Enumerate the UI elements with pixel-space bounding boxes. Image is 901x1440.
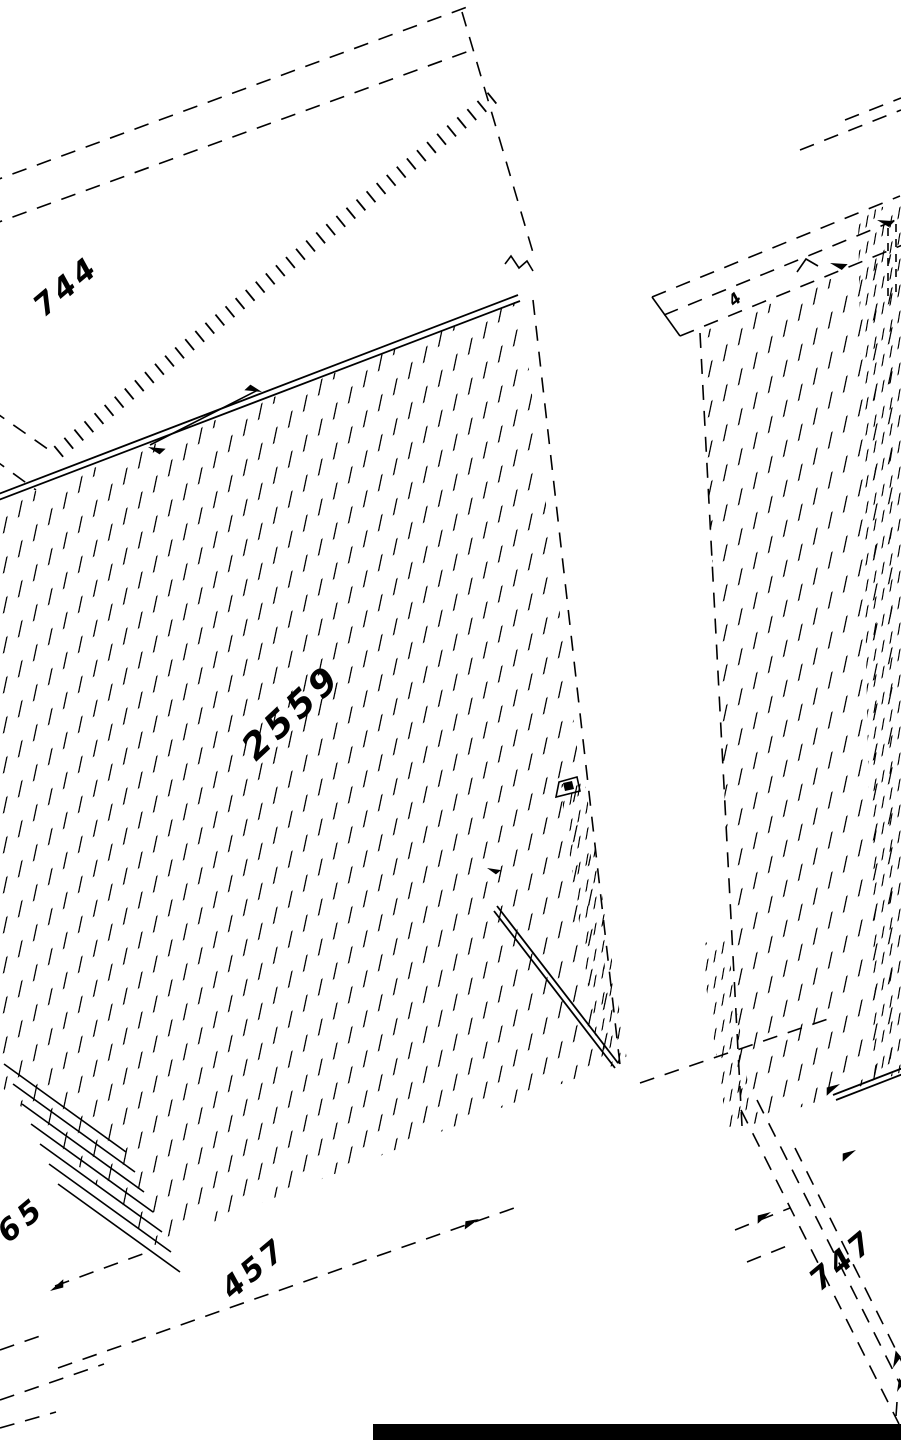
dimension-arrowhead-icon: [829, 258, 848, 271]
bottom-black-bar: [373, 1424, 901, 1440]
right-panel-hatched: [700, 200, 901, 1128]
dimension-arrowhead-icon: [462, 1217, 481, 1230]
bottom-center-dimension: 457: [58, 1206, 520, 1368]
dimension-arrowhead-icon: [48, 1279, 67, 1293]
drawing-canvas: 744 2559 4: [0, 0, 901, 1440]
corner-notch: [505, 256, 533, 271]
center-panel-hatched: 2559: [0, 300, 828, 1245]
rail-notch: [797, 259, 818, 272]
label-top-panel-width: 744: [27, 249, 107, 324]
bottom-right-dimension: 747: [735, 1100, 901, 1424]
cad-isometric-drawing: 744 2559 4: [0, 0, 901, 1440]
dimension-arrowhead-icon: [840, 1148, 859, 1162]
label-bottom-depth: 457: [214, 1231, 294, 1306]
label-rail-mark: 4: [724, 287, 747, 311]
label-bottom-left-offset: 65: [0, 1190, 53, 1250]
label-bottom-right-width: 747: [803, 1223, 883, 1298]
